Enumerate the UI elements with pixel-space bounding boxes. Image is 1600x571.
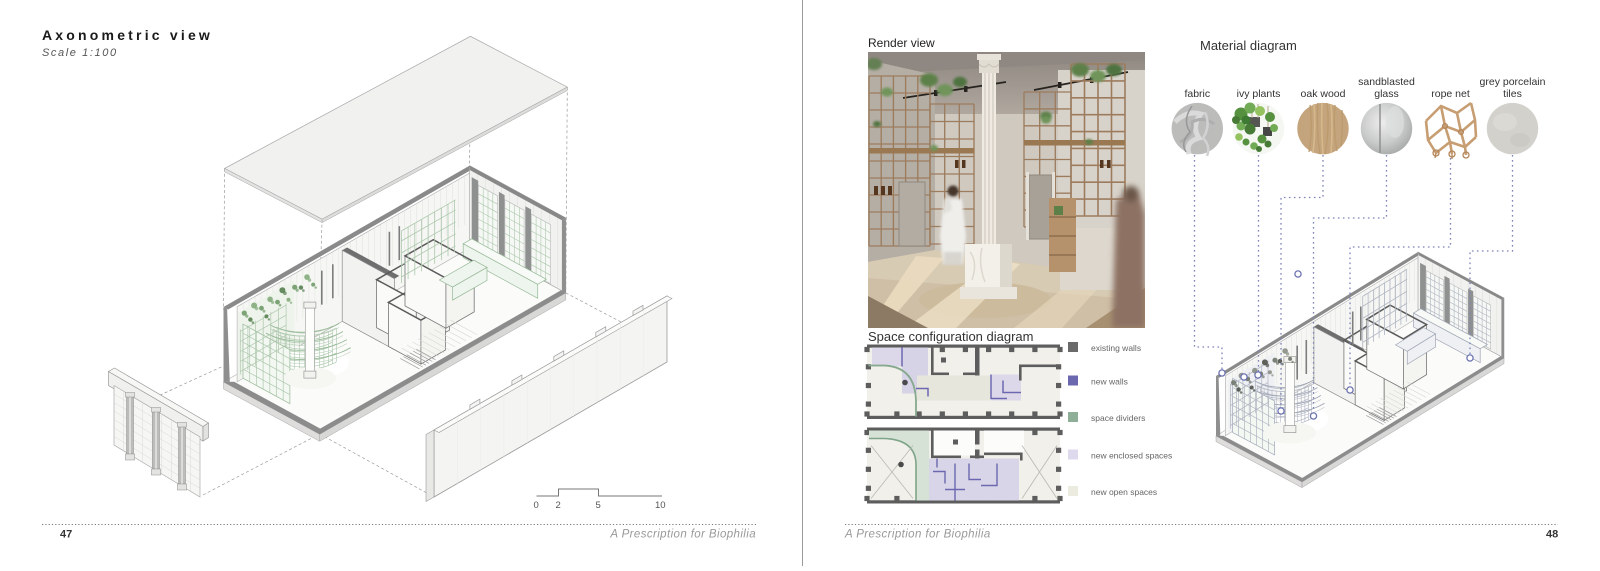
svg-text:ivy plants: ivy plants	[1237, 88, 1281, 100]
svg-text:sandblasted: sandblasted	[1358, 76, 1415, 88]
svg-text:glass: glass	[1374, 88, 1399, 100]
svg-text:47: 47	[60, 529, 72, 541]
svg-text:10: 10	[655, 500, 666, 511]
svg-text:tiles: tiles	[1503, 88, 1522, 100]
svg-text:grey porcelain: grey porcelain	[1480, 76, 1546, 88]
svg-text:new walls: new walls	[1091, 377, 1128, 387]
svg-text:5: 5	[596, 500, 601, 511]
svg-text:fabric: fabric	[1184, 88, 1210, 100]
svg-text:Render view: Render view	[868, 36, 935, 50]
svg-text:new open spaces: new open spaces	[1091, 487, 1157, 497]
svg-text:A Prescription for Biophilia: A Prescription for Biophilia	[844, 529, 991, 541]
svg-text:Scale 1:100: Scale 1:100	[42, 47, 118, 59]
svg-text:space dividers: space dividers	[1091, 413, 1145, 423]
svg-text:48: 48	[1546, 529, 1558, 541]
svg-text:Axonometric view: Axonometric view	[42, 27, 213, 43]
svg-text:0: 0	[534, 500, 539, 511]
svg-text:Material diagram: Material diagram	[1200, 38, 1297, 53]
svg-text:rope net: rope net	[1431, 88, 1470, 100]
svg-text:A Prescription for Biophilia: A Prescription for Biophilia	[609, 529, 756, 541]
svg-text:new enclosed spaces: new enclosed spaces	[1091, 451, 1172, 461]
svg-text:2: 2	[556, 500, 561, 511]
svg-text:Space configuration diagram: Space configuration diagram	[868, 329, 1034, 344]
svg-text:existing walls: existing walls	[1091, 343, 1141, 353]
svg-text:oak wood: oak wood	[1301, 88, 1346, 100]
